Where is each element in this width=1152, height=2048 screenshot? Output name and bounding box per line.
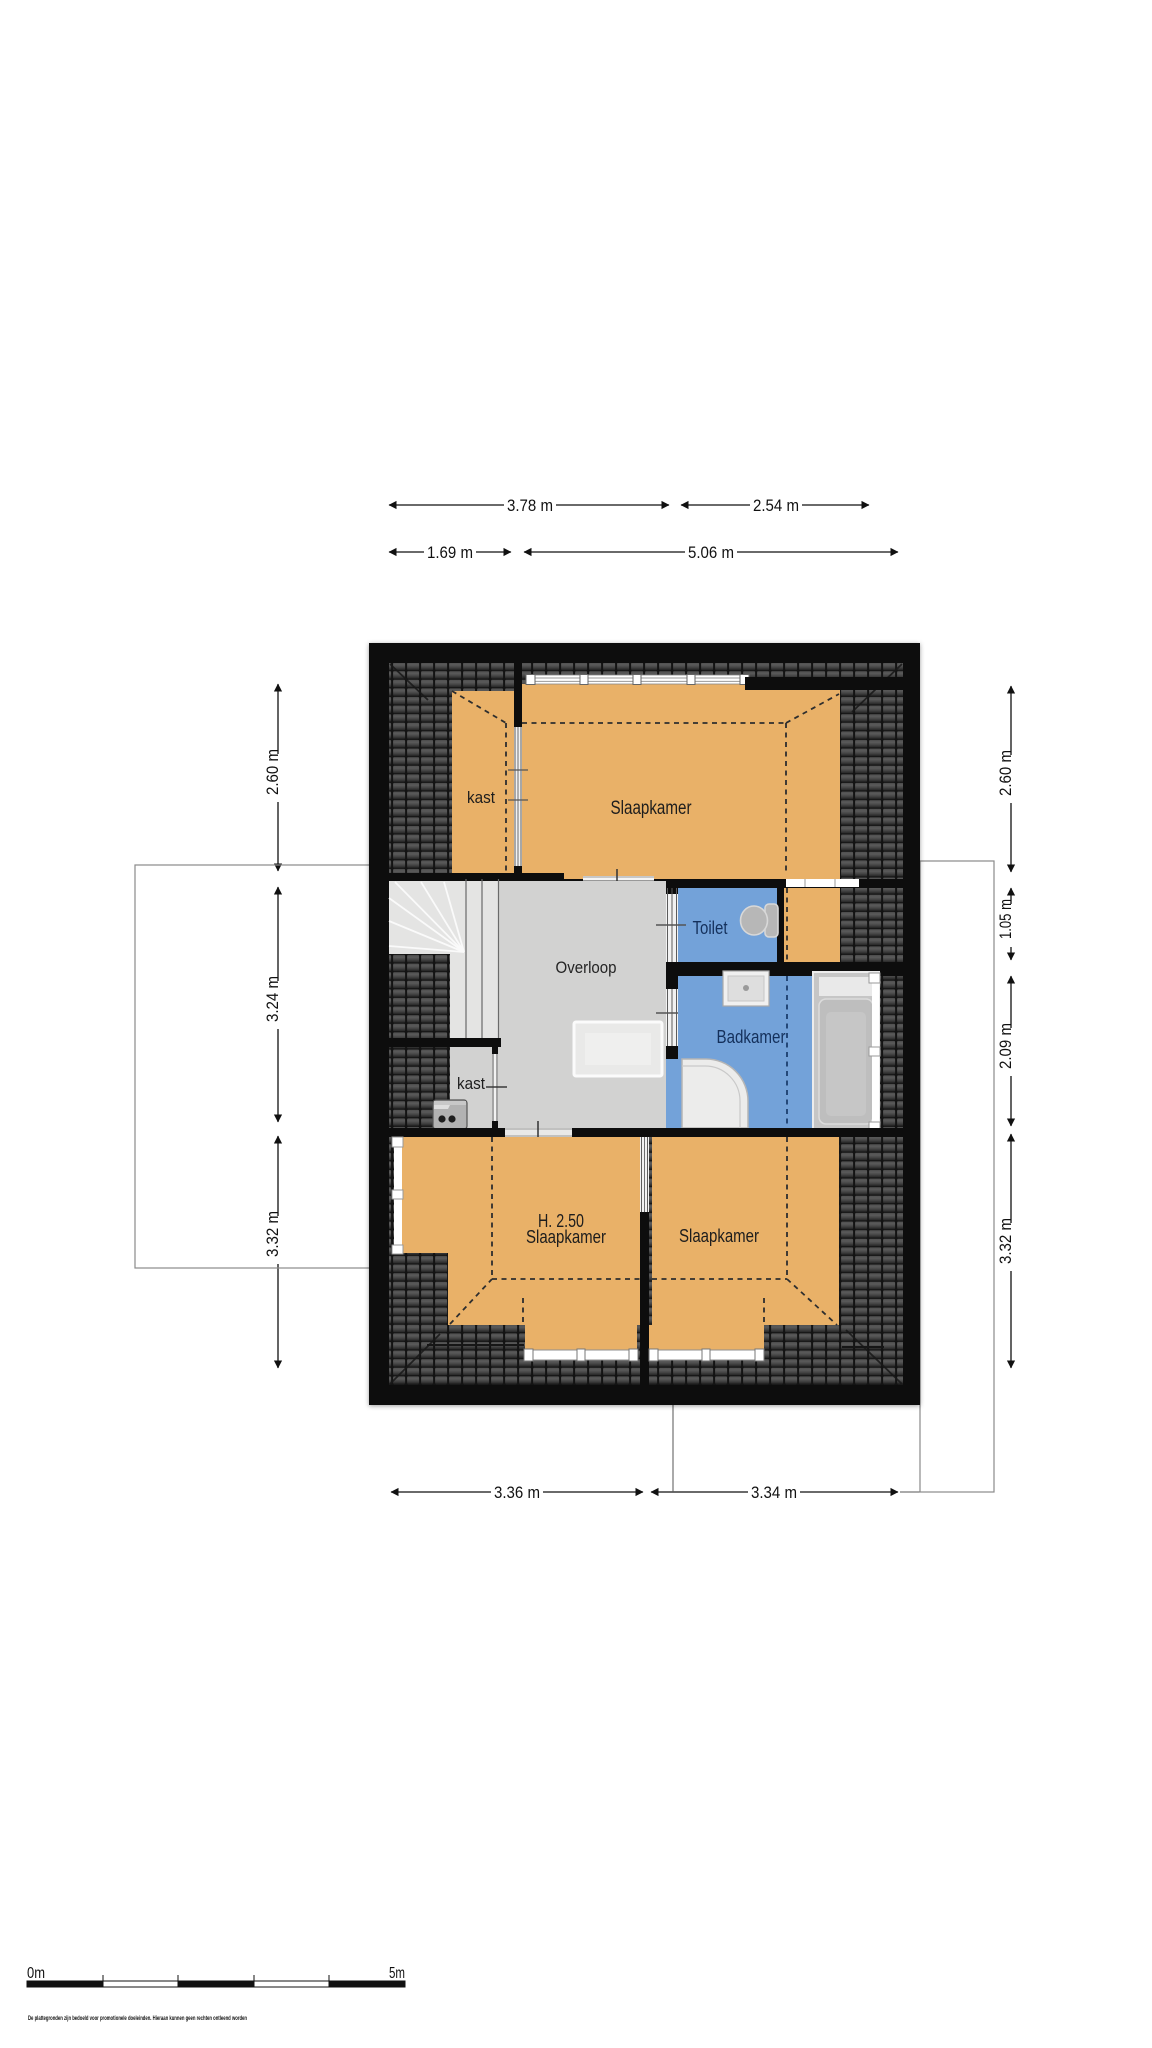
svg-text:Slaapkamer: Slaapkamer [611, 798, 693, 819]
svg-text:Badkamer: Badkamer [717, 1027, 786, 1047]
svg-text:2.60 m: 2.60 m [996, 750, 1015, 796]
svg-text:Overloop: Overloop [556, 958, 617, 977]
svg-text:De plattegronden zijn bedoeld: De plattegronden zijn bedoeld voor promo… [28, 2016, 247, 2022]
svg-text:3.78 m: 3.78 m [507, 496, 553, 515]
svg-text:5m: 5m [389, 1965, 405, 1982]
svg-text:3.34 m: 3.34 m [751, 1483, 797, 1502]
svg-text:3.32 m: 3.32 m [996, 1218, 1015, 1264]
svg-text:2.09 m: 2.09 m [996, 1023, 1015, 1069]
svg-text:Slaapkamer: Slaapkamer [679, 1226, 759, 1246]
svg-text:0m: 0m [27, 1965, 45, 1982]
svg-text:kast: kast [467, 788, 495, 807]
svg-text:5.06 m: 5.06 m [688, 543, 734, 562]
svg-text:kast: kast [457, 1074, 485, 1093]
svg-text:Toilet: Toilet [693, 918, 728, 938]
svg-text:2.60 m: 2.60 m [263, 749, 282, 795]
svg-text:3.36 m: 3.36 m [494, 1483, 540, 1502]
svg-text:3.32 m: 3.32 m [263, 1211, 282, 1257]
svg-text:3.24 m: 3.24 m [263, 976, 282, 1022]
svg-text:2.54 m: 2.54 m [753, 496, 799, 515]
svg-text:1.69 m: 1.69 m [427, 543, 473, 562]
svg-text:Slaapkamer: Slaapkamer [526, 1227, 606, 1247]
svg-text:1.05 m: 1.05 m [996, 899, 1015, 939]
